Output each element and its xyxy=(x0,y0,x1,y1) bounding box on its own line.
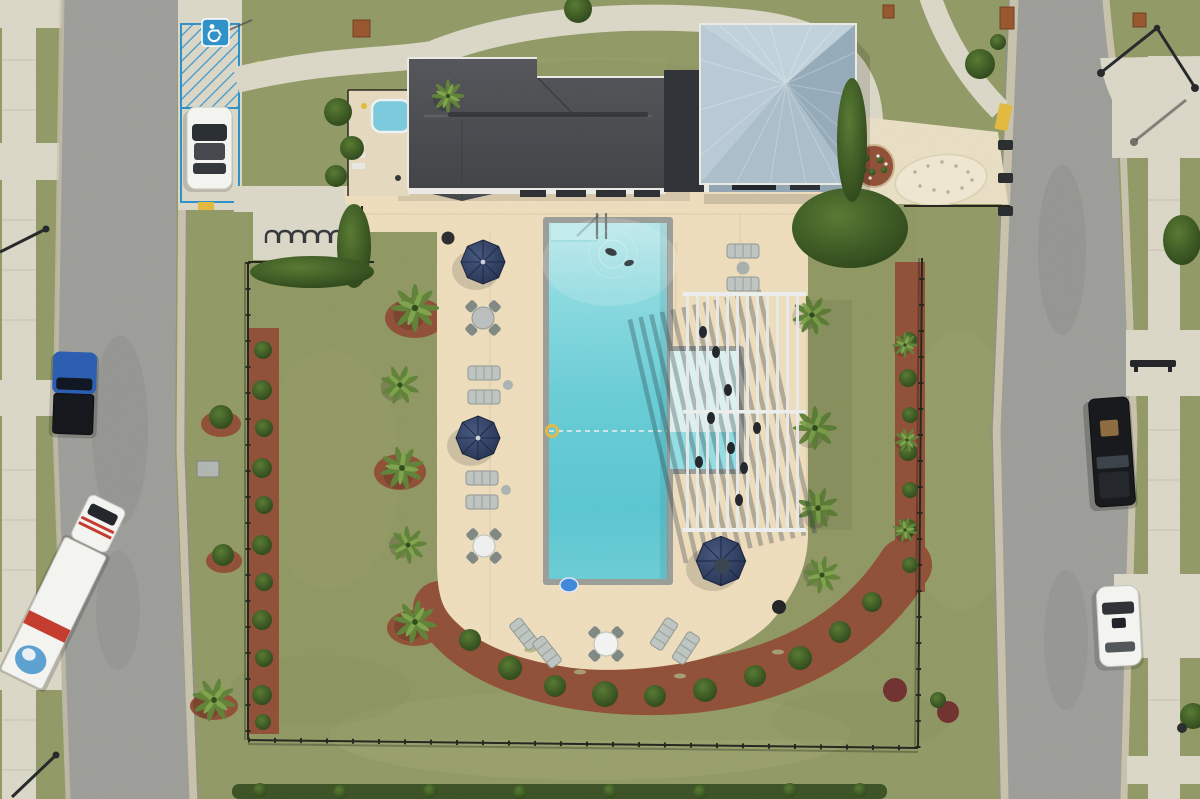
photo-grain xyxy=(0,0,1200,799)
aerial-scene: Top-down aerial view of a community amen… xyxy=(0,0,1200,799)
aerial-photo: Top-down aerial view of a community amen… xyxy=(0,0,1200,799)
